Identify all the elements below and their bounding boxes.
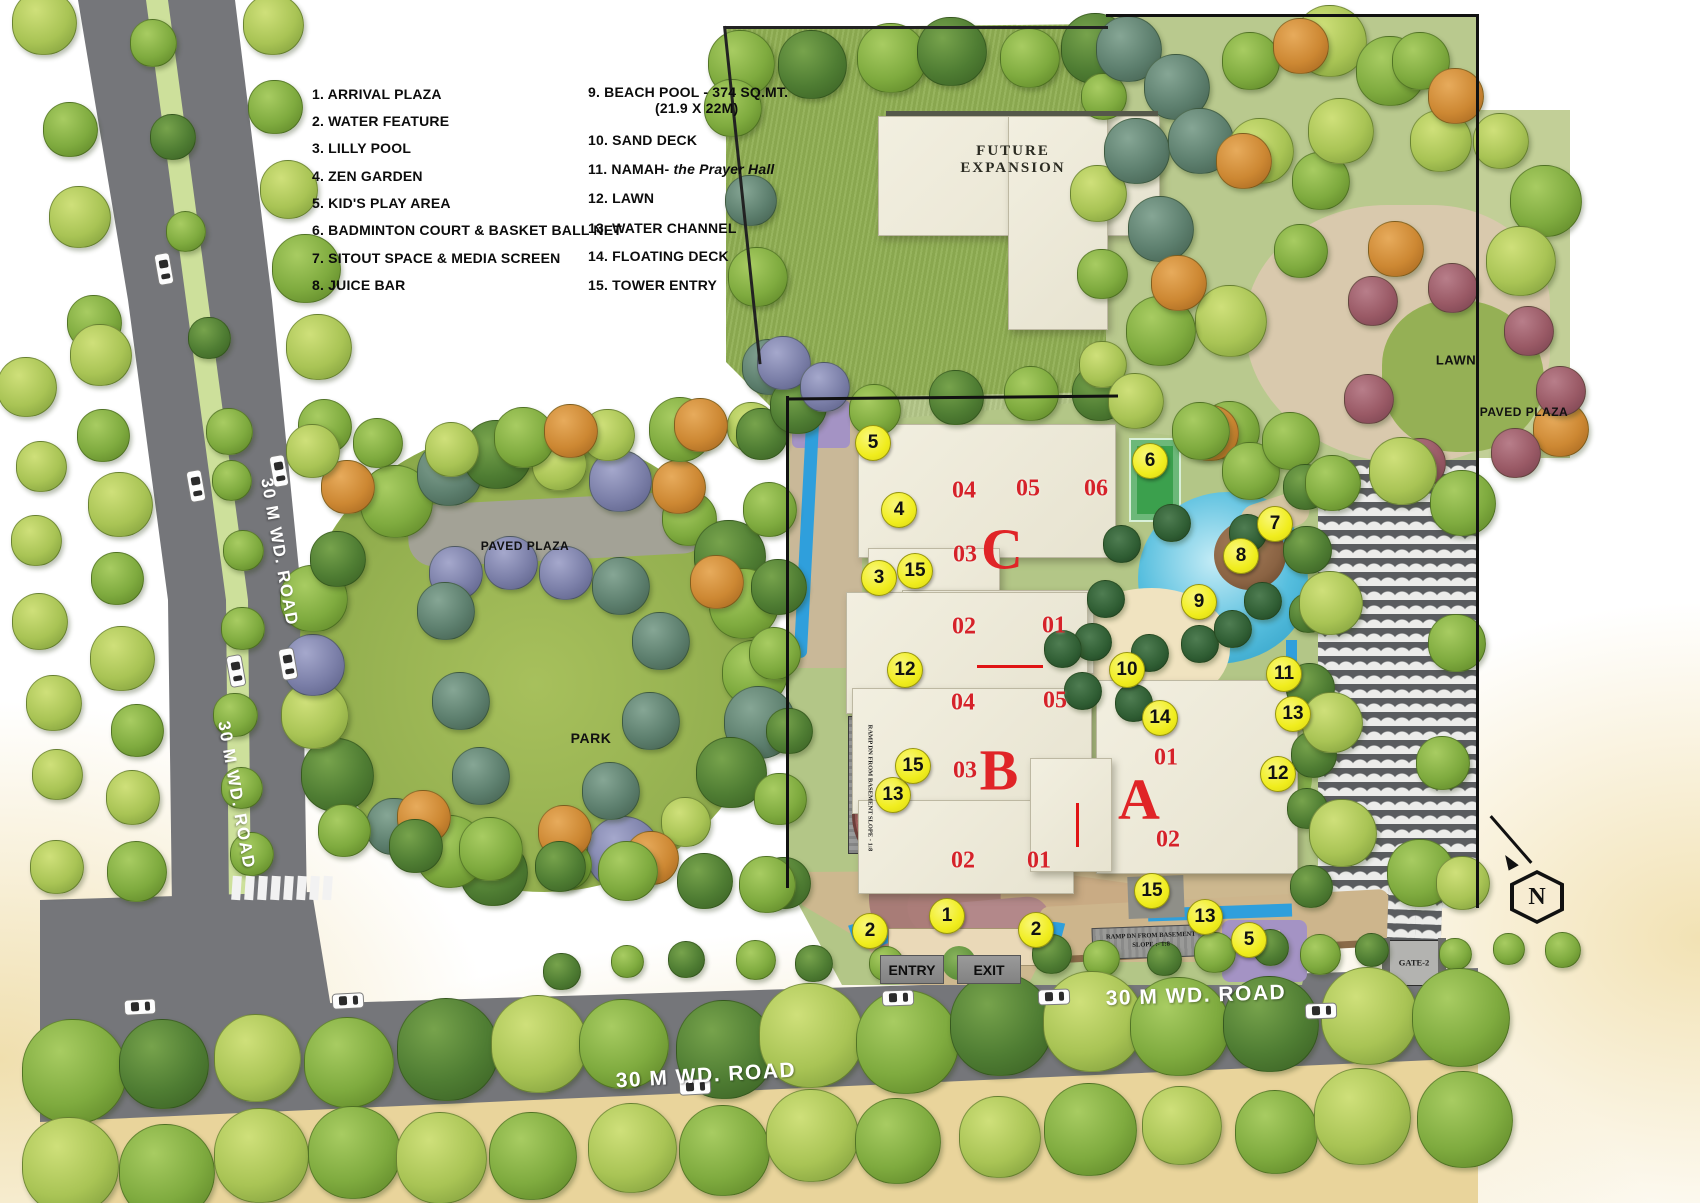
legend-item-right-6: 14. FLOATING DECK	[588, 248, 729, 264]
tower-letter-A: A	[1118, 766, 1160, 833]
marker-5: 5	[855, 425, 891, 461]
road-label-2: 30 M WD. ROAD	[615, 1059, 797, 1094]
marker-1: 1	[929, 898, 965, 934]
unit-label-6-04: 04	[951, 690, 975, 717]
legend-item-right-0: 9. BEACH POOL - 374 SQ.MT.	[588, 84, 788, 100]
exit-gate-label: EXIT	[957, 955, 1021, 984]
compass-needle-line	[1490, 815, 1533, 864]
marker-8: 8	[1223, 538, 1259, 574]
marker-5: 5	[1231, 922, 1267, 958]
legend-item-italic: the Prayer Hall	[669, 161, 774, 177]
marker-13: 13	[1275, 696, 1311, 732]
marker-7: 7	[1257, 506, 1293, 542]
unit-label-4-02: 02	[952, 614, 976, 641]
unit-label-2-06: 06	[1084, 476, 1108, 503]
area-label-line: EXPANSION	[960, 160, 1065, 177]
marker-14: 14	[1142, 700, 1178, 736]
legend-item-2: 2. WATER FEATURE	[312, 113, 449, 129]
entry-gate-label: ENTRY	[880, 955, 944, 984]
site-master-plan: N 1. ARRIVAL PLAZA2. WATER FEATURE3. LIL…	[0, 0, 1700, 1203]
legend-item-8: 8. JUICE BAR	[312, 277, 405, 293]
legend-item-right-5: 13. WATER CHANNEL	[588, 220, 737, 236]
compass-north-label: N	[1528, 884, 1545, 911]
marker-6: 6	[1132, 443, 1168, 479]
tower-letter-C: C	[981, 516, 1023, 583]
unit-label-11-01: 01	[1154, 745, 1178, 772]
marker-12: 12	[1260, 756, 1296, 792]
unit-label-1-05: 05	[1016, 476, 1040, 503]
unit-label-3-03: 03	[953, 542, 977, 569]
area-label-paved-plaza-ne: PAVED PLAZA	[1480, 405, 1568, 419]
area-label-line: FUTURE	[960, 143, 1065, 160]
marker-15: 15	[895, 748, 931, 784]
area-label-future-expansion: FUTUREEXPANSION	[960, 143, 1065, 177]
unit-label-12-02: 02	[1156, 827, 1180, 854]
compass-rose-icon: N	[1510, 870, 1564, 924]
marker-2: 2	[852, 913, 888, 949]
road-label-3: 30 M WD. ROAD	[1105, 981, 1286, 1011]
ramp-plaque-label: RAMP DN FROM BASEMENTSLOPE :- 1:8	[1106, 931, 1196, 952]
marker-11: 11	[1266, 656, 1302, 692]
legend-item-right-2: 10. SAND DECK	[588, 132, 697, 148]
ramp-left-label: RAMP DN FROM BASEMENT SLOPE - 1:8	[865, 723, 874, 853]
marker-10: 10	[1109, 652, 1145, 688]
gate2-label: GATE-2	[1399, 957, 1430, 968]
road-label-0: 30 M WD. ROAD	[256, 476, 302, 627]
marker-9: 9	[1181, 584, 1217, 620]
area-label-park: PARK	[571, 730, 612, 746]
legend-item-7: 7. SITOUT SPACE & MEDIA SCREEN	[312, 250, 560, 266]
legend-item-right-1: (21.9 X 22M)	[655, 100, 738, 116]
unit-label-10-01: 01	[1027, 848, 1051, 875]
marker-3: 3	[861, 560, 897, 596]
marker-12: 12	[887, 652, 923, 688]
road-label-1: 30 M WD. ROAD	[213, 719, 259, 870]
unit-label-7-05: 05	[1043, 688, 1067, 715]
legend-item-1: 1. ARRIVAL PLAZA	[312, 86, 442, 102]
unit-label-0-04: 04	[952, 478, 976, 505]
marker-13: 13	[1187, 899, 1223, 935]
marker-15: 15	[1134, 873, 1170, 909]
unit-label-8-03: 03	[953, 758, 977, 785]
layer-labels: N 1. ARRIVAL PLAZA2. WATER FEATURE3. LIL…	[0, 0, 1700, 1203]
legend-item-right-3: 11. NAMAH- the Prayer Hall	[588, 161, 775, 177]
legend-item-6: 6. BADMINTON COURT & BASKET BALL NET	[312, 222, 622, 238]
compass-arrowhead-icon	[1503, 855, 1520, 872]
unit-label-9-02: 02	[951, 848, 975, 875]
unit-label-5-01: 01	[1042, 613, 1066, 640]
legend-item-4: 4. ZEN GARDEN	[312, 168, 423, 184]
tower-letter-B: B	[980, 737, 1019, 804]
legend-item-right-7: 15. TOWER ENTRY	[588, 277, 717, 293]
legend-item-5: 5. KID'S PLAY AREA	[312, 195, 451, 211]
legend-item-right-4: 12. LAWN	[588, 190, 654, 206]
marker-15: 15	[897, 553, 933, 589]
marker-2: 2	[1018, 912, 1054, 948]
legend-item-3: 3. LILLY POOL	[312, 140, 411, 156]
area-label-lawn-ne: LAWN	[1436, 353, 1476, 368]
area-label-paved-plaza-w: PAVED PLAZA	[481, 539, 569, 553]
marker-4: 4	[881, 492, 917, 528]
